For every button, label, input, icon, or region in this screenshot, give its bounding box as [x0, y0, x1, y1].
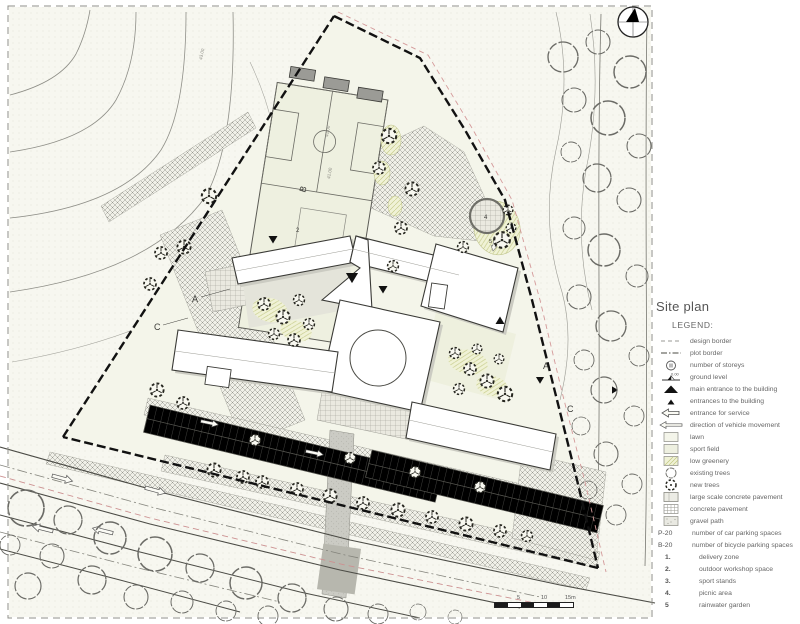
stands-key: 3. — [656, 578, 695, 585]
scale-bar-segments — [494, 602, 574, 608]
legend-item-ground-level: 0.00 ground level — [656, 371, 798, 383]
existing-trees-symbol — [656, 467, 686, 479]
lawn-symbol — [656, 432, 686, 442]
new-trees-symbol — [656, 479, 686, 491]
legend-item-design-border: design border — [656, 335, 798, 347]
building-label-c-east: C — [567, 404, 574, 414]
large-concrete-symbol — [656, 492, 686, 502]
vehicle-direction-symbol — [656, 420, 686, 430]
legend-item-new-trees: new trees — [656, 479, 798, 491]
concrete-symbol — [656, 504, 686, 514]
legend-item-storeys: number of storeys — [656, 359, 798, 371]
rainwater-key: 5 — [656, 602, 695, 609]
legend-panel: Site plan LEGEND: design border plot bor… — [656, 299, 798, 611]
main-entrance-symbol — [656, 384, 686, 394]
legend-item-concrete: concrete pavement — [656, 503, 798, 515]
legend-item-large-concrete: large scale concrete pavement — [656, 491, 798, 503]
legend-item-bike-parking: B-20 number of bicycle parking spaces — [656, 539, 798, 551]
car-parking-key: P-20 — [656, 530, 688, 537]
legend-item-delivery: 1. delivery zone — [656, 551, 798, 563]
design-border-symbol — [656, 336, 686, 346]
scale-bar: 5 10 15m — [494, 595, 578, 611]
legend-item-vehicle-direction: direction of vehicle movement — [656, 419, 798, 431]
service-entrance-symbol — [656, 408, 686, 418]
legend-item-service-entrance: entrance for service — [656, 407, 798, 419]
legend-item-entrances: entrances to the building — [656, 395, 798, 407]
legend-item-workshop: 2. outdoor workshop space — [656, 563, 798, 575]
building-label-a-east: A — [543, 361, 549, 371]
legend-item-car-parking: P-20 number of car parking spaces — [656, 527, 798, 539]
picnic-key: 4. — [656, 590, 695, 597]
entrances-symbol — [656, 396, 686, 406]
legend-item-existing-trees: existing trees — [656, 467, 798, 479]
legend-item-low-greenery: low greenery — [656, 455, 798, 467]
legend-item-gravel: gravel path — [656, 515, 798, 527]
legend-heading: LEGEND: — [672, 320, 798, 330]
ground-level-symbol: 0.00 — [656, 371, 686, 383]
low-greenery-symbol — [656, 456, 686, 466]
legend-item-rainwater: 5 rainwater garden — [656, 599, 798, 611]
building-label-a-west: A — [192, 294, 198, 304]
sport-field-symbol — [656, 444, 686, 454]
delivery-key: 1. — [656, 554, 695, 561]
gravel-symbol — [656, 516, 686, 526]
scale-bar-labels: 5 10 15m — [494, 595, 578, 602]
legend-item-picnic: 4. picnic area — [656, 587, 798, 599]
area-number-rainwater: 5 — [489, 239, 492, 245]
plot-border-symbol — [656, 348, 686, 358]
legend-item-main-entrance: main entrance to the building — [656, 383, 798, 395]
legend-item-lawn: lawn — [656, 431, 798, 443]
building-label-c-west: C — [154, 322, 161, 332]
page-title: Site plan — [656, 299, 798, 314]
workshop-key: 2. — [656, 566, 695, 573]
bike-parking-key: B-20 — [656, 542, 688, 549]
legend-item-sport-field: sport field — [656, 443, 798, 455]
north-arrow-icon — [618, 7, 648, 37]
svg-text:0.00: 0.00 — [671, 372, 680, 377]
legend-item-stands: 3. sport stands — [656, 575, 798, 587]
legend-item-plot-border: plot border — [656, 347, 798, 359]
storeys-symbol — [656, 360, 686, 371]
site-plan-page: A C B A C 2 4 5 43.00 41.00 41.00 Site p… — [0, 0, 800, 624]
